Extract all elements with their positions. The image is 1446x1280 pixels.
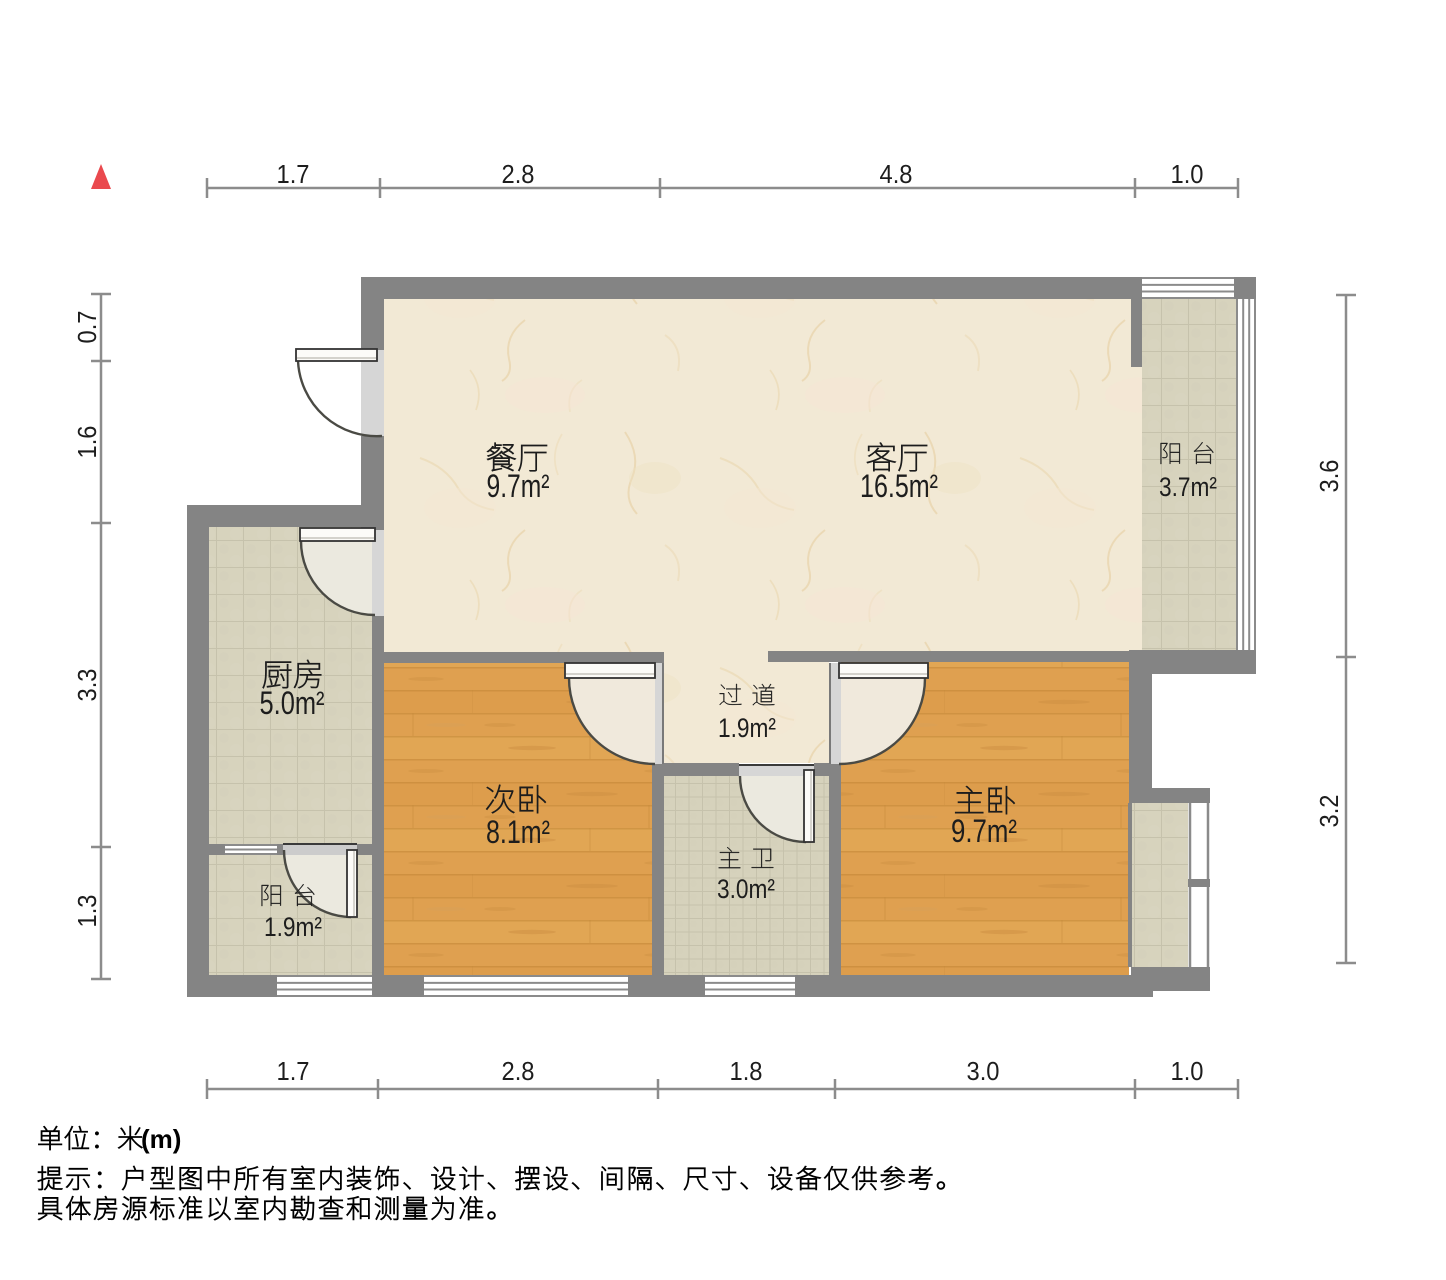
svg-text:16.5m²: 16.5m²: [860, 468, 938, 504]
svg-text:1.0: 1.0: [1171, 1056, 1204, 1086]
svg-text:1.7: 1.7: [277, 159, 310, 189]
svg-text:8.1m²: 8.1m²: [486, 814, 550, 850]
svg-text:0.7: 0.7: [72, 311, 102, 344]
svg-text:3.2: 3.2: [1314, 795, 1344, 828]
svg-text:9.7m²: 9.7m²: [487, 468, 550, 504]
svg-text:3.7m²: 3.7m²: [1159, 472, 1217, 502]
svg-text:3.3: 3.3: [72, 669, 102, 702]
svg-text:(m): (m): [141, 1124, 181, 1154]
svg-text:2.8: 2.8: [502, 1056, 535, 1086]
svg-text:1.9m²: 1.9m²: [264, 912, 322, 942]
svg-text:1.0: 1.0: [1171, 159, 1204, 189]
svg-text:1.6: 1.6: [72, 426, 102, 459]
svg-text:2.8: 2.8: [502, 159, 535, 189]
svg-text:1.3: 1.3: [72, 895, 102, 928]
svg-text:1.7: 1.7: [277, 1056, 310, 1086]
svg-text:5.0m²: 5.0m²: [260, 685, 325, 721]
svg-text:9.7m²: 9.7m²: [951, 813, 1017, 849]
svg-text:1.9m²: 1.9m²: [718, 713, 776, 743]
svg-text:3.6: 3.6: [1314, 460, 1344, 493]
svg-text:3.0: 3.0: [967, 1056, 1000, 1086]
svg-text:1.8: 1.8: [730, 1056, 763, 1086]
svg-text:3.0m²: 3.0m²: [717, 874, 775, 904]
svg-text:4.8: 4.8: [880, 159, 913, 189]
